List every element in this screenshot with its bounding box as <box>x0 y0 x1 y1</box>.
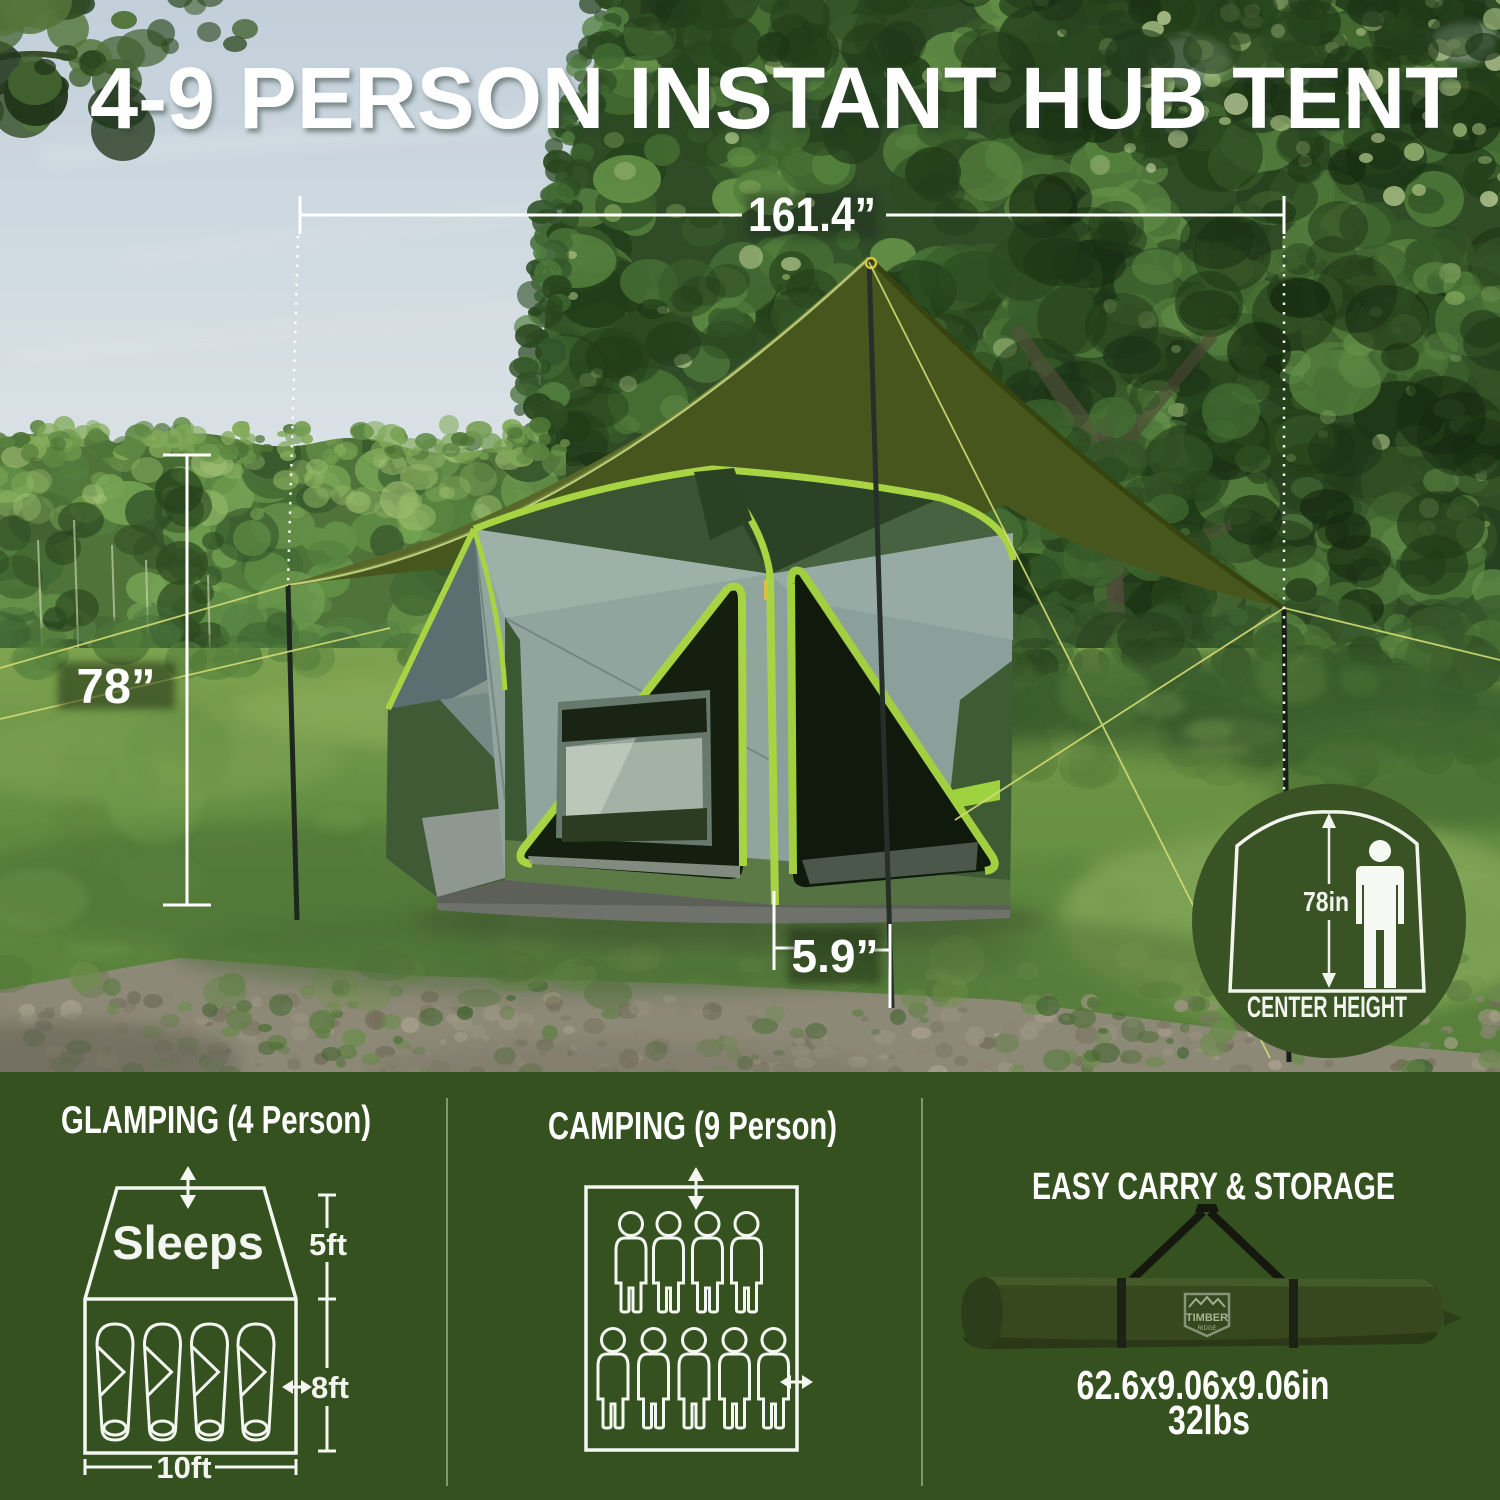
svg-text:8ft: 8ft <box>311 1370 349 1405</box>
svg-text:RIDGE: RIDGE <box>1197 1326 1216 1332</box>
svg-text:78in: 78in <box>1303 886 1349 917</box>
svg-text:32lbs: 32lbs <box>1168 1397 1250 1443</box>
svg-text:TIMBER: TIMBER <box>1186 1312 1228 1324</box>
svg-text:161.4”: 161.4” <box>748 189 876 242</box>
svg-text:CAMPING (9 Person): CAMPING (9 Person) <box>548 1105 837 1148</box>
svg-text:5ft: 5ft <box>309 1227 347 1262</box>
svg-text:Sleeps: Sleeps <box>112 1216 264 1269</box>
svg-text:5.9”: 5.9” <box>792 930 879 982</box>
svg-text:78”: 78” <box>76 660 155 714</box>
svg-text:EASY CARRY & STORAGE: EASY CARRY & STORAGE <box>1032 1166 1395 1208</box>
svg-text:CENTER HEIGHT: CENTER HEIGHT <box>1247 991 1407 1024</box>
svg-text:4-9 PERSON INSTANT HUB TENT: 4-9 PERSON INSTANT HUB TENT <box>90 50 1458 147</box>
svg-text:10ft: 10ft <box>156 1450 211 1485</box>
svg-text:GLAMPING (4 Person): GLAMPING (4 Person) <box>61 1099 371 1142</box>
